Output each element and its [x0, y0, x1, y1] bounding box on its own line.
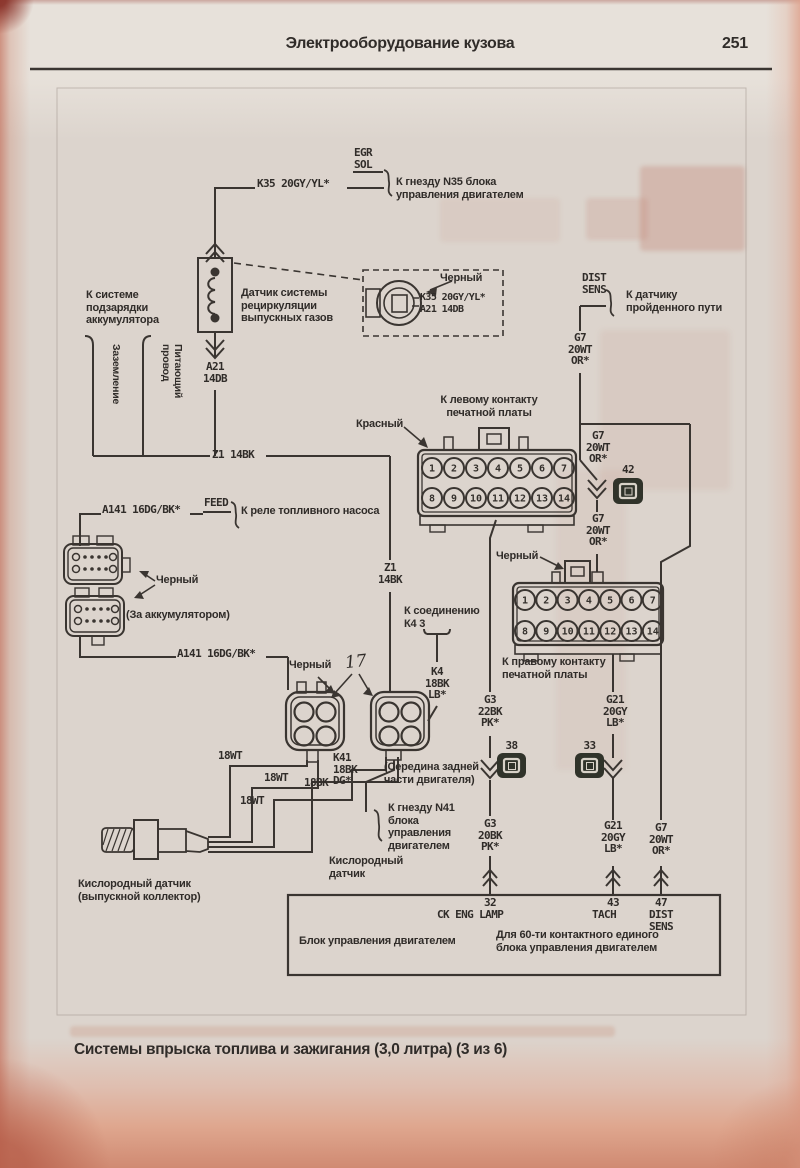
svg-text:12: 12 — [514, 494, 526, 505]
oxygen-sensor-drawing — [102, 820, 208, 859]
svg-text:6: 6 — [539, 464, 545, 475]
pcb-right-pins-row1: 1234567 — [515, 590, 663, 610]
k41-wire-label: K41 18BK DG* — [333, 752, 357, 787]
n41-destination: К гнезду N41 блока управления двигателем — [388, 802, 455, 852]
grommet-38-number: 38 — [497, 740, 526, 752]
18wt-wire-label: 18WT — [218, 750, 242, 762]
g7-wire-label: G7 20WT OR* — [578, 513, 618, 548]
n35-destination: К гнезду N35 блока управления двигателем — [396, 176, 524, 201]
k41-location-note: (Середина задней части двигателя) — [384, 761, 479, 786]
svg-text:8: 8 — [429, 494, 435, 505]
svg-text:14: 14 — [647, 627, 659, 638]
svg-text:7: 7 — [650, 596, 656, 607]
page-number: 251 — [722, 38, 770, 51]
svg-text:2: 2 — [543, 596, 549, 607]
battery-connector-1 — [64, 536, 130, 584]
svg-text:1: 1 — [522, 596, 528, 607]
battery-connector-color: Черный — [156, 574, 198, 587]
pointer-arrows — [134, 281, 564, 698]
g21-wire-label: G21 20GY LB* — [593, 820, 633, 855]
inline-a21-label: A21 14DB — [420, 304, 463, 315]
svg-text:11: 11 — [492, 494, 504, 505]
scanned-manual-page: 1234567 891011121314 1234567 89101112131… — [0, 0, 800, 1168]
a141-wire-label: A141 16DG/BK* — [102, 504, 180, 516]
g7-wire-label: G7 20WT OR* — [560, 332, 600, 367]
pcb-right-pins-row2: 891011121314 — [515, 621, 663, 641]
svg-text:5: 5 — [517, 464, 523, 475]
svg-text:9: 9 — [543, 627, 549, 638]
ecu-pin-43-name: TACH — [592, 909, 616, 921]
feed-tag: FEED — [204, 497, 228, 509]
grommet-icon-38 — [497, 753, 526, 778]
handwritten-17: 17 — [344, 651, 368, 673]
svg-text:10: 10 — [562, 627, 574, 638]
supply-wire-label: Питающий провод — [160, 344, 184, 398]
svg-text:7: 7 — [561, 464, 567, 475]
svg-text:4: 4 — [495, 464, 501, 475]
egr-sensor-caption: Датчик системы рециркуляции выпускных га… — [241, 287, 333, 325]
pcb-connector-right — [513, 561, 663, 661]
svg-text:14: 14 — [558, 494, 570, 505]
ecu-pin-32: 32 — [474, 897, 506, 909]
svg-text:2: 2 — [451, 464, 457, 475]
g3-20-wire-label: G3 20BK PK* — [470, 818, 510, 853]
svg-text:4: 4 — [586, 596, 592, 607]
grommet-42-number: 42 — [613, 464, 643, 476]
oxygen-sensor-label: Кислородный датчик — [329, 855, 403, 880]
oxygen-connector-color: Черный — [289, 659, 331, 672]
oxygen-connector-right — [371, 692, 429, 760]
svg-text:11: 11 — [583, 627, 595, 638]
18bk-wire-label: 18BK — [304, 777, 328, 789]
k4-wire-label: K4 18BK LB* — [417, 666, 457, 701]
behind-battery-note: (За аккумулятором) — [126, 609, 230, 622]
g21-wire-label: G21 20GY LB* — [595, 694, 635, 729]
svg-text:3: 3 — [473, 464, 479, 475]
right-pcb-title: К правому контакту печатной платы — [502, 656, 606, 681]
inline-connector-color: Черный — [440, 272, 482, 285]
ecu-pin-43: 43 — [597, 897, 629, 909]
z1-wire-label-vertical: Z1 14BK — [370, 562, 410, 585]
svg-text:10: 10 — [470, 494, 482, 505]
svg-text:13: 13 — [625, 627, 637, 638]
dist-destination: К датчику пройденного пути — [626, 289, 722, 314]
grommet-33-number: 33 — [575, 740, 604, 752]
ecu-pin-47: 47 — [644, 897, 678, 909]
svg-text:8: 8 — [522, 627, 528, 638]
figure-caption: Системы впрыска топлива и зажигания (3,0… — [74, 1044, 507, 1057]
grommet-icon-42 — [613, 478, 643, 504]
charge-system-destination: К системе подзарядки аккумулятора — [86, 289, 159, 327]
page-header-title: Электрооборудование кузова — [240, 38, 560, 51]
g3-22-wire-label: G3 22BK PK* — [470, 694, 510, 729]
dist-sens-tag: DIST SENS — [582, 272, 606, 295]
left-pcb-title: К левому контакту печатной платы — [414, 394, 564, 419]
ecu-note: Для 60-ти контактного единого блока упра… — [496, 929, 659, 954]
k35-wire-label: K35 20GY/YL* — [257, 178, 329, 190]
18wt-wire-label: 18WT — [264, 772, 288, 784]
pcb-left-pins-row1: 1234567 — [422, 458, 574, 478]
black-connector-color: Черный — [496, 550, 538, 563]
pcb-connector-left — [418, 428, 576, 532]
egr-sol-tag: EGR SOL — [354, 147, 372, 170]
svg-text:9: 9 — [451, 494, 457, 505]
ground-wire-label: Заземление — [110, 344, 123, 404]
oxygen-sensor-manifold-label: Кислородный датчик (выпускной коллектор) — [78, 878, 201, 903]
svg-text:3: 3 — [565, 596, 571, 607]
svg-text:13: 13 — [536, 494, 548, 505]
egr-coil — [208, 278, 215, 314]
inline-k35-label: K35 20GY/YL* — [420, 292, 485, 303]
ecu-name: Блок управления двигателем — [299, 935, 456, 948]
svg-text:6: 6 — [628, 596, 634, 607]
ecu-pin-32-name: CK ENG LAMP — [437, 909, 503, 921]
a21-wire-label: A21 14DB — [195, 361, 235, 384]
svg-text:5: 5 — [607, 596, 613, 607]
z1-wire-label: Z1 14BK — [212, 449, 254, 461]
g7-wire-label: G7 20WT OR* — [641, 822, 681, 857]
fuel-pump-destination: К реле топливного насоса — [241, 505, 379, 518]
18wt-wire-label: 18WT — [240, 795, 264, 807]
red-connector-color: Красный — [356, 418, 403, 431]
grommet-icon-33 — [575, 753, 604, 778]
svg-text:12: 12 — [604, 627, 616, 638]
svg-text:1: 1 — [429, 464, 435, 475]
g7-wire-label: G7 20WT OR* — [578, 430, 618, 465]
pcb-left-pins-row2: 891011121314 — [422, 488, 574, 508]
a141-wire-label: A141 16DG/BK* — [177, 648, 255, 660]
dashed-leader — [234, 263, 363, 280]
battery-connector-2 — [66, 588, 124, 645]
k4-splice-destination: К соединению К4 3 — [404, 605, 480, 630]
